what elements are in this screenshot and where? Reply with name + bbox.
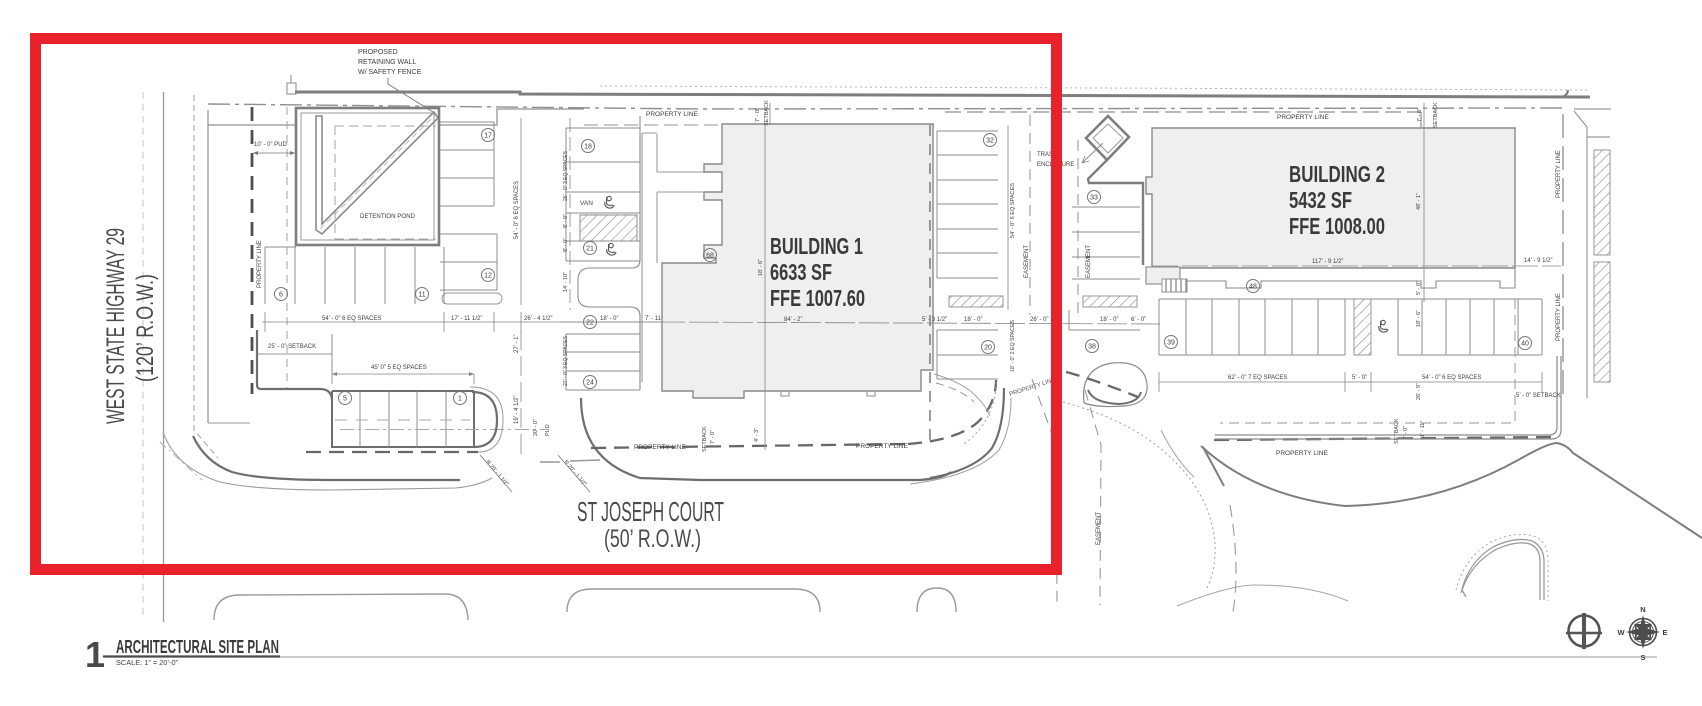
svg-text:W: W — [1617, 628, 1625, 637]
svg-text:E: E — [1662, 628, 1667, 637]
svg-text:18’ - 0”: 18’ - 0” — [964, 317, 982, 323]
svg-text:6’ - 0”: 6’ - 0” — [1131, 317, 1146, 323]
svg-text:EASEMENT: EASEMENT — [1086, 245, 1092, 278]
svg-text:5’ - 0”: 5’ - 0” — [1352, 375, 1367, 381]
svg-text:48: 48 — [1249, 284, 1257, 291]
svg-text:19’ - 4 1/2”: 19’ - 4 1/2” — [514, 396, 520, 424]
svg-text:DETENTION POND: DETENTION POND — [360, 213, 415, 220]
svg-text:10’ - 0” PUD: 10’ - 0” PUD — [254, 142, 287, 148]
svg-text:SETBACK: SETBACK — [1394, 418, 1400, 444]
svg-text:4’ - 3”: 4’ - 3” — [754, 428, 760, 442]
svg-text:20: 20 — [984, 345, 992, 352]
svg-text:(120’ R.O.W.): (120’ R.O.W.) — [132, 274, 159, 382]
svg-text:BUILDING 2: BUILDING 2 — [1289, 161, 1385, 187]
svg-text:W/ SAFETY FENCE: W/ SAFETY FENCE — [358, 69, 422, 76]
svg-text:26’ - 0” 3 EQ SPACES: 26’ - 0” 3 EQ SPACES — [563, 151, 569, 201]
svg-text:6: 6 — [279, 292, 283, 299]
svg-text:FFE 1008.00: FFE 1008.00 — [1289, 213, 1385, 239]
svg-text:ARCHITECTURAL SITE PLAN: ARCHITECTURAL SITE PLAN — [116, 636, 279, 657]
svg-text:48’ - 1”: 48’ - 1” — [1416, 193, 1422, 210]
svg-text:68: 68 — [706, 253, 714, 260]
svg-text:21: 21 — [586, 246, 594, 253]
svg-text:26’ - 4 1/2”: 26’ - 4 1/2” — [524, 316, 552, 322]
svg-text:5’ - 0” SETBACK: 5’ - 0” SETBACK — [1516, 393, 1561, 399]
svg-text:EASEMENT: EASEMENT — [1096, 512, 1102, 545]
svg-text:7’ - 11”: 7’ - 11” — [645, 316, 663, 322]
svg-text:7’ - 0”: 7’ - 0” — [710, 430, 716, 444]
svg-text:26’ - 0”: 26’ - 0” — [1030, 317, 1048, 323]
svg-text:117’ - 9 1/2”: 117’ - 9 1/2” — [1312, 259, 1343, 265]
svg-text:(50’ R.O.W.): (50’ R.O.W.) — [604, 525, 701, 553]
svg-text:PROPERTY LINE: PROPERTY LINE — [1556, 293, 1562, 341]
svg-text:1: 1 — [85, 634, 105, 675]
svg-text:17’ - 11 1/2”: 17’ - 11 1/2” — [451, 316, 482, 322]
svg-text:BUILDING 1: BUILDING 1 — [770, 233, 863, 259]
svg-text:24: 24 — [586, 380, 594, 387]
svg-text:54’ - 0” 6 EQ SPACES: 54’ - 0” 6 EQ SPACES — [322, 316, 381, 322]
svg-text:ST JOSEPH COURT: ST JOSEPH COURT — [577, 496, 724, 527]
svg-text:39: 39 — [1167, 340, 1175, 347]
svg-text:FFE 1007.60: FFE 1007.60 — [770, 285, 865, 311]
svg-text:40: 40 — [1521, 341, 1529, 348]
svg-text:8’ - 0”: 8’ - 0” — [563, 238, 569, 252]
svg-text:45’ 0” 5 EQ SPACES: 45’ 0” 5 EQ SPACES — [371, 365, 427, 371]
svg-text:17: 17 — [484, 133, 492, 140]
svg-text:5’ - 0”: 5’ - 0” — [1416, 281, 1422, 295]
svg-text:62’ - 0” 7 EQ SPACES: 62’ - 0” 7 EQ SPACES — [1228, 375, 1287, 381]
svg-text:PROPERTY LINE: PROPERTY LINE — [646, 111, 698, 118]
svg-text:PROPERTY LINE: PROPERTY LINE — [856, 443, 908, 450]
svg-text:S: S — [1640, 653, 1645, 662]
svg-text:SETBACK: SETBACK — [1433, 102, 1439, 128]
svg-text:PROPERTY LINE: PROPERTY LINE — [1277, 114, 1329, 121]
svg-text:18’ - 6”: 18’ - 6” — [1416, 310, 1422, 327]
svg-text:EASEMENT: EASEMENT — [1024, 245, 1030, 278]
svg-text:27’ - 1”: 27’ - 1” — [514, 335, 520, 353]
svg-text:18’ - 0”: 18’ - 0” — [1100, 317, 1118, 323]
svg-text:18’ - 0” 2 EQ SPACES: 18’ - 0” 2 EQ SPACES — [1010, 320, 1016, 372]
svg-text:SCALE: 1” = 20’-0”: SCALE: 1” = 20’-0” — [116, 660, 179, 667]
svg-text:PROPERTY LINE: PROPERTY LINE — [257, 240, 263, 288]
svg-text:5432 SF: 5432 SF — [1289, 187, 1352, 213]
svg-text:N: N — [1640, 605, 1645, 614]
svg-text:PUD: PUD — [545, 424, 551, 436]
svg-text:5: 5 — [343, 396, 347, 403]
svg-text:SETBACK: SETBACK — [702, 426, 708, 452]
svg-text:54’ - 0” 6 EQ SPACES: 54’ - 0” 6 EQ SPACES — [1010, 183, 1016, 238]
svg-text:5’ - 3 1/2”: 5’ - 3 1/2” — [922, 317, 947, 323]
svg-text:18’ - 6”: 18’ - 6” — [758, 259, 764, 276]
svg-text:32: 32 — [986, 138, 994, 145]
svg-text:PROPERTY LINE: PROPERTY LINE — [1556, 150, 1562, 198]
svg-text:22: 22 — [586, 320, 594, 327]
svg-text:6633 SF: 6633 SF — [770, 259, 832, 285]
svg-text:11: 11 — [418, 292, 425, 299]
svg-text:54’ - 0” 6 EQ SPACES: 54’ - 0” 6 EQ SPACES — [514, 181, 520, 239]
svg-text:PROPERTY LINE: PROPERTY LINE — [1276, 450, 1328, 457]
svg-text:33: 33 — [1090, 195, 1098, 202]
svg-text:54’ - 0” 6 EQ SPACES: 54’ - 0” 6 EQ SPACES — [1422, 375, 1481, 381]
svg-text:14’ - 10”: 14’ - 10” — [563, 272, 569, 292]
svg-text:7’ - 0”: 7’ - 0” — [755, 108, 761, 122]
svg-text:26’ - 9”: 26’ - 9” — [1416, 383, 1422, 400]
svg-text:18’ - 0”: 18’ - 0” — [600, 316, 618, 322]
svg-text:25’ - 0” SETBACK: 25’ - 0” SETBACK — [268, 344, 316, 350]
svg-text:18: 18 — [584, 144, 592, 151]
svg-text:7’ - 0”: 7’ - 0” — [1417, 108, 1423, 122]
svg-text:PROPOSED: PROPOSED — [358, 49, 398, 56]
svg-text:WEST STATE HIGHWAY 29: WEST STATE HIGHWAY 29 — [102, 228, 130, 424]
svg-text:38: 38 — [1088, 344, 1096, 351]
svg-text:8’ - 0”: 8’ - 0” — [563, 214, 569, 228]
svg-text:20’ - 0”: 20’ - 0” — [533, 419, 539, 436]
svg-text:VAN: VAN — [580, 200, 593, 207]
svg-text:RETAINING WALL: RETAINING WALL — [358, 59, 416, 66]
svg-text:27’ - 0” 3 EQ SPACES: 27’ - 0” 3 EQ SPACES — [563, 336, 569, 386]
svg-text:1: 1 — [458, 396, 462, 403]
svg-text:SETBACK: SETBACK — [764, 100, 770, 126]
svg-text:84’ - 2”: 84’ - 2” — [784, 317, 802, 323]
svg-text:PROPERTY LINE: PROPERTY LINE — [634, 444, 686, 451]
svg-text:14’ - 9 1/2”: 14’ - 9 1/2” — [1524, 258, 1552, 264]
svg-text:12: 12 — [484, 273, 492, 280]
